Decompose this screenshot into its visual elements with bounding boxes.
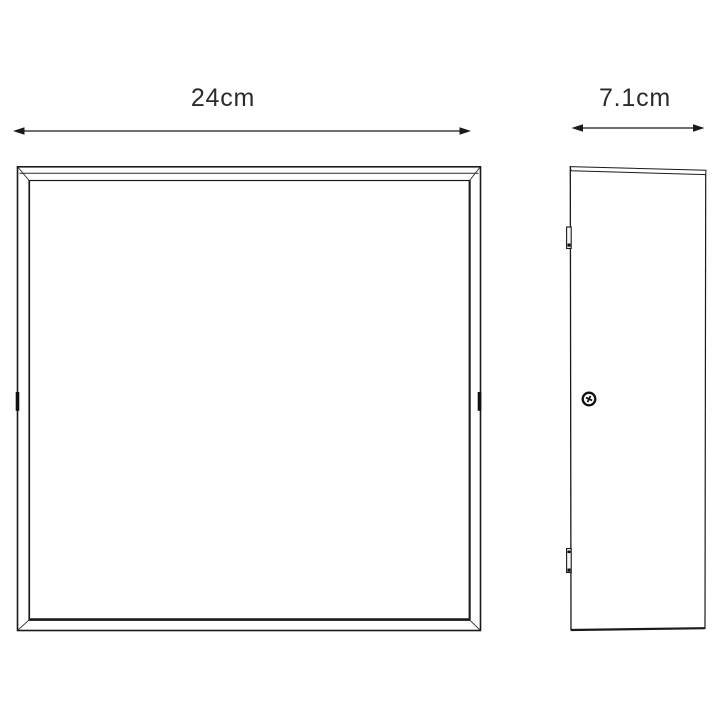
mounting-clip-bottom-icon: [567, 549, 572, 573]
clip-detent: [568, 569, 571, 572]
front-left-mount-tab: [16, 392, 20, 411]
clip-detent: [568, 551, 571, 554]
front-width-dimension-arrow: [13, 127, 471, 134]
side-view-top-edge: [570, 167, 706, 175]
screw-head-icon: [583, 393, 596, 406]
clip-detent: [568, 244, 571, 247]
front-view-inner-panel: [29, 181, 470, 621]
dimension-arrowhead-left-icon: [572, 124, 584, 131]
technical-drawing: [0, 0, 720, 720]
side-depth-dimension-arrow: [572, 124, 705, 131]
dimension-arrowhead-right-icon: [693, 124, 705, 131]
side-view: [567, 167, 706, 630]
technical-drawing-page: 24cm 7.1cm: [0, 0, 720, 720]
front-view: [16, 167, 482, 631]
front-right-mount-tab: [478, 392, 482, 411]
dimension-arrowhead-left-icon: [13, 127, 25, 134]
dimension-arrowhead-right-icon: [460, 127, 472, 134]
side-view-right-edge: [705, 175, 706, 629]
side-view-bottom-edge: [571, 628, 706, 630]
mounting-clip-top-icon: [567, 227, 572, 249]
